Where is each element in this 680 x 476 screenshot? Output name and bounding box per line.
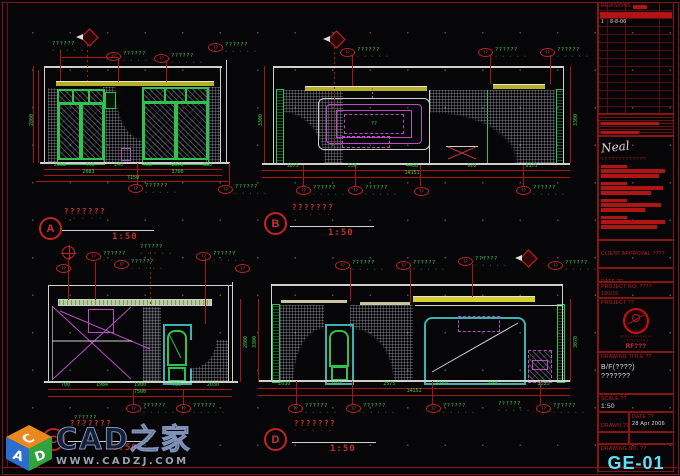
dimension-value: 1075 <box>331 382 343 387</box>
leader-tag: ????????▵ ▵ ▵ ▵ ▵ <box>218 185 267 195</box>
construction-line <box>44 66 45 163</box>
dimension-line <box>350 268 351 301</box>
cad-drawing-sheet: A ??????? ▵ ▵ ▵ ▵ ▵ 1:50 2800 ?? <box>0 0 680 476</box>
leader-tag: ????????▵ ▵ ▵ ▵ ▵ <box>126 404 175 414</box>
leader-tag: ????????▵ ▵ ▵ ▵ ▵ <box>106 52 155 62</box>
dimension-line <box>352 55 353 86</box>
door-arch-panel <box>329 330 349 367</box>
centerline <box>372 88 373 98</box>
dimension-values-row: 20301075257541505002225 <box>258 382 570 387</box>
transom-pane <box>186 88 208 102</box>
vertical-dimension: 2800 <box>243 336 249 348</box>
drawing-title-cell: DRAWING TITLE ?? B/F(????) ??????? <box>598 352 674 394</box>
dimension-line <box>258 395 570 396</box>
dimension-line <box>472 264 473 297</box>
leader-tag: ????????▵ ▵ ▵ ▵ ▵ <box>458 257 507 267</box>
construction-line <box>48 285 49 383</box>
construction-line <box>220 66 221 163</box>
drawn-cell: DRAWN ?? <box>598 412 629 432</box>
leader-tag: ??????▵ ▵ ▵ ▵ ▵ <box>140 245 172 255</box>
construction-line <box>273 66 564 68</box>
tag-text: ??????▵ ▵ ▵ ▵ ▵ <box>123 52 155 62</box>
leader-dashed-line <box>87 45 88 81</box>
tag-oval-icon: ?? <box>348 186 363 195</box>
company-seal-icon <box>623 308 649 334</box>
title-underline <box>290 226 374 227</box>
tag-oval-icon: ?? <box>426 404 441 413</box>
tag-oval-icon: ?? <box>56 264 71 273</box>
dimension-line <box>410 268 411 303</box>
construction-line <box>562 284 563 382</box>
tag-text: ??????▵ ▵ ▵ ▵ ▵ <box>413 261 445 271</box>
dimension-value: 14151 <box>406 389 421 394</box>
leader-tag: ????????▵ ▵ ▵ ▵ ▵ <box>154 54 203 64</box>
panel-joint <box>487 90 488 163</box>
dimension-value: 750 <box>172 383 181 388</box>
leader-tag: ????????▵ ▵ ▵ ▵ ▵ <box>540 48 589 58</box>
door-leaf <box>58 103 81 160</box>
dimension-line <box>95 262 96 300</box>
tag-text: ??????▵ ▵ ▵ ▵ ▵ <box>235 185 267 195</box>
checked-cell: CHECKED ?? <box>598 432 629 444</box>
construction-line <box>429 90 430 163</box>
beam-band <box>360 302 410 305</box>
tag-text: ??????▵ ▵ ▵ ▵ ▵ <box>145 184 177 194</box>
drawn-date-cell: DATE ?? 28 Apr 2006 <box>629 412 674 432</box>
tag-oval-icon: ?? <box>218 185 233 194</box>
wall-light-fixture <box>105 92 116 109</box>
handrail-detail-inner <box>532 360 548 370</box>
dimension-line <box>264 66 265 163</box>
transom-pane <box>58 90 73 103</box>
tag-oval-icon: ?? <box>536 404 551 413</box>
tag-oval-icon: ?? <box>106 52 121 61</box>
dimension-value: 768 <box>143 163 152 168</box>
dimension-value: 2225 <box>538 382 550 387</box>
section-marker-icon <box>327 33 345 46</box>
dimension-value: 530 <box>348 164 357 169</box>
construction-line <box>271 284 563 286</box>
dimension-values-row: 187553044689206375 <box>262 164 562 169</box>
tag-text: ??????▵ ▵ ▵ ▵ ▵ <box>495 48 527 58</box>
tag-text: ??????▵ ▵ ▵ ▵ ▵ <box>365 186 397 196</box>
tag-text: ??????▵ ▵ ▵ ▵ ▵ <box>363 404 395 414</box>
transom-pane <box>89 90 104 103</box>
leader-tag: ????????▵ ▵ ▵ ▵ ▵ <box>516 186 565 196</box>
leader-tag: ????????▵ ▵ ▵ ▵ ▵ <box>348 186 397 196</box>
section-marker-icon <box>519 252 537 265</box>
sheet-border-inner-left <box>7 2 8 468</box>
tag-oval-icon: ?? <box>540 48 555 57</box>
tag-oval-icon: ?? <box>478 48 493 57</box>
dimension-value: 500 <box>488 382 497 387</box>
transom-pane <box>73 90 88 103</box>
tag-text: ??????▵ ▵ ▵ ▵ ▵ <box>533 186 565 196</box>
dimension-value: 4468 <box>406 164 418 169</box>
drawing-no-cell: DRAWING NO. ?? GE-01 <box>598 444 674 472</box>
wall-hatch <box>350 305 413 381</box>
elevation-scale: 1:50 <box>330 444 356 454</box>
date-cell: DATE ?? <box>598 268 674 282</box>
leader-tag: ????????▵ ▵ ▵ ▵ ▵ <box>196 252 245 262</box>
tag-oval-icon: ?? <box>114 260 129 269</box>
cadzj-cube-logo-icon: C A D <box>6 425 52 471</box>
tag-oval-icon: ?? <box>176 404 191 413</box>
title-block: REVISIONS 1 8-8-06 Neal ????????????? <box>597 2 676 474</box>
revisions-highlight <box>633 5 647 9</box>
dimension-value: 3760 <box>171 170 183 175</box>
tag-oval-icon: ?? <box>296 186 311 195</box>
client-approval-cell: CLIENT APPROVAL ???? <box>598 240 674 268</box>
wall-hatch <box>48 88 57 162</box>
construction-line <box>271 284 272 382</box>
leader-tag: ????????▵ ▵ ▵ ▵ ▵ <box>426 404 475 414</box>
column-trim <box>276 89 284 165</box>
tag-text: ??????▵ ▵ ▵ ▵ ▵ <box>213 252 245 262</box>
beam-band <box>58 299 212 306</box>
notes-block <box>598 114 674 136</box>
door-leaf <box>143 102 176 160</box>
dimension-line <box>205 258 206 324</box>
watermark: C A D CAD之家 WWW.CADZJ.COM <box>6 425 192 471</box>
dimension-line <box>60 50 61 81</box>
section-cut-line <box>334 47 335 146</box>
tag-text: ??????▵ ▵ ▵ ▵ ▵ <box>553 404 585 414</box>
leader-tag: ????????▵ ▵ ▵ ▵ ▵ <box>114 260 163 270</box>
transom-pane <box>165 88 187 102</box>
door-unit <box>57 89 105 165</box>
vertical-dimension: 2800 <box>29 114 35 126</box>
tag-oval-icon: ?? <box>154 54 169 63</box>
dimension-line <box>570 66 571 163</box>
construction-line <box>228 285 229 383</box>
tag-text: ??????▵ ▵ ▵ ▵ ▵ <box>305 404 337 414</box>
tag-oval-icon: ?? <box>208 43 223 52</box>
leader-tag: ?? <box>56 264 71 273</box>
dimension-values-row: 7150 <box>44 176 222 181</box>
dimension-value: 7150 <box>127 176 139 181</box>
dimension-value: 14151 <box>404 171 419 176</box>
door-leaf <box>176 102 209 160</box>
elevation-title: ??????? ▵ ▵ ▵ ▵ ▵ <box>294 420 336 432</box>
tag-oval-icon: ?? <box>548 261 563 270</box>
tag-oval-icon: ?? <box>288 404 303 413</box>
stair-hatch <box>143 307 161 381</box>
dimension-value: 440 <box>85 163 94 168</box>
transom-pane <box>143 88 165 102</box>
wall-hatch <box>430 90 555 163</box>
construction-line <box>563 66 564 163</box>
dimension-line <box>229 163 230 185</box>
dimension-values-row: 20884402407682570880 <box>44 163 222 168</box>
dimension-values-row: 7500 <box>48 390 232 395</box>
tag-text: ??????▵ ▵ ▵ ▵ ▵ <box>565 261 597 271</box>
dimension-value: 2570 <box>171 163 183 168</box>
dimension-value: 880 <box>203 163 212 168</box>
leader-tag: ?? <box>235 264 250 273</box>
door-kick-panel <box>331 366 348 381</box>
construction-line <box>273 66 274 163</box>
tag-oval-icon: ?? <box>235 264 250 273</box>
tag-oval-icon: ?? <box>516 186 531 195</box>
leader-tag: ????????▵ ▵ ▵ ▵ ▵ <box>536 404 585 414</box>
column-trim <box>557 304 565 383</box>
tag-text: ??????▵ ▵ ▵ ▵ ▵ <box>193 404 225 414</box>
dimension-value: 6375 <box>525 164 537 169</box>
elevation-label-a: A <box>39 217 62 240</box>
dimension-line <box>550 55 551 84</box>
revisions-header-bar <box>600 12 672 18</box>
dimension-line <box>240 299 241 382</box>
dimension-line <box>48 396 232 397</box>
checked-date-cell: DATE ?? <box>629 432 674 444</box>
tag-oval-icon: ?? <box>128 184 143 193</box>
tag-text: ??????▵ ▵ ▵ ▵ ▵ <box>171 54 203 64</box>
cabinet-detail <box>342 136 390 148</box>
door-arch-panel <box>167 330 187 366</box>
leader-tag: ????????▵ ▵ ▵ ▵ ▵ <box>548 261 597 271</box>
tag-text: ??????▵ ▵ ▵ ▵ ▵ <box>313 186 345 196</box>
vertical-dimension: 3300 <box>573 114 579 126</box>
dimension-line <box>570 299 571 382</box>
leader-tag: ?? <box>414 187 429 196</box>
elevation-title: ??????? ▵ ▵ ▵ ▵ ▵ <box>64 208 106 220</box>
tag-oval-icon: ?? <box>196 252 211 261</box>
door-kick-panel <box>168 367 186 382</box>
dimension-value: 2575 <box>383 382 395 387</box>
ceiling-detail <box>458 316 500 332</box>
dimension-values-row: 14151 <box>258 389 570 394</box>
tag-text: ??????▵ ▵ ▵ ▵ ▵ <box>52 42 84 52</box>
tag-text: ??????▵ ▵ ▵ ▵ ▵ <box>143 404 175 414</box>
title-underline <box>62 230 154 231</box>
leader-tag: ????????▵ ▵ ▵ ▵ ▵ <box>340 48 389 58</box>
revision-no: 1 <box>601 19 604 26</box>
dimension-value: 4150 <box>436 382 448 387</box>
dimension-values-row: 700198419007502030 <box>48 383 232 388</box>
leader-tag: ????????▵ ▵ ▵ ▵ ▵ <box>346 404 395 414</box>
watermark-url: WWW.CADZJ.COM <box>56 456 192 467</box>
tag-text: ??????▵ ▵ ▵ ▵ ▵ <box>352 261 384 271</box>
dimension-line <box>36 181 228 182</box>
firm-signature: Neal <box>600 140 630 155</box>
dimension-value: 2088 <box>54 163 66 168</box>
dimension-line <box>258 299 259 382</box>
tag-oval-icon: ?? <box>414 187 429 196</box>
dimension-line <box>38 70 39 163</box>
revisions-table: REVISIONS 1 8-8-06 <box>598 2 674 114</box>
project-no-cell: PROJECT NO. ???? 100/19 <box>598 282 674 298</box>
tag-oval-icon: ?? <box>335 261 350 270</box>
tag-text: ??????▵ ▵ ▵ ▵ ▵ <box>557 48 589 58</box>
ceiling-band <box>305 86 427 91</box>
construction-line <box>415 305 563 306</box>
leader-tag: ????????▵ ▵ ▵ ▵ ▵ <box>208 43 257 53</box>
elevation-title: ??????? ▵ ▵ ▵ ▵ ▵ <box>292 204 334 216</box>
dimension-value: 7500 <box>134 390 146 395</box>
leader-tag: ??????▵ ▵ ▵ ▵ ▵ <box>52 42 84 52</box>
tag-oval-icon: ?? <box>346 404 361 413</box>
wall-hatch <box>280 305 324 381</box>
leader-tag: ??????▵ ▵ ▵ ▵ ▵ <box>498 402 530 412</box>
leader-tag: ????????▵ ▵ ▵ ▵ ▵ <box>288 404 337 414</box>
dimension-value: 1875 <box>287 164 299 169</box>
leader-tag: ????????▵ ▵ ▵ ▵ ▵ <box>296 186 345 196</box>
table-top <box>446 146 478 147</box>
revision-date: 8-8-06 <box>610 19 626 26</box>
leader-tag: ????????▵ ▵ ▵ ▵ ▵ <box>128 184 177 194</box>
tag-text: ??????▵ ▵ ▵ ▵ ▵ <box>443 404 475 414</box>
tag-oval-icon: ?? <box>340 48 355 57</box>
dimension-value: 2030 <box>278 382 290 387</box>
firm-name: ????????????? <box>601 156 671 162</box>
construction-line <box>232 282 233 383</box>
construction-line <box>226 60 227 163</box>
detail-box <box>88 309 114 333</box>
detail-mark <box>121 148 131 161</box>
leader-tag: ????????▵ ▵ ▵ ▵ ▵ <box>335 261 384 271</box>
tag-oval-icon: ?? <box>458 257 473 266</box>
elevation-scale: 1:50 <box>112 232 138 242</box>
door-unit <box>142 87 209 165</box>
ceiling-band <box>493 84 545 89</box>
ceiling-band <box>413 296 535 302</box>
construction-line <box>44 66 222 68</box>
tv-inner-detail <box>344 114 404 134</box>
tag-text: ??????▵ ▵ ▵ ▵ ▵ <box>225 43 257 53</box>
leader-tag: ????????▵ ▵ ▵ ▵ ▵ <box>176 404 225 414</box>
scale-cell: SCALE ?? 1:50 <box>598 394 674 412</box>
dimension-value: 1984 <box>96 383 108 388</box>
revisions-title: REVISIONS <box>601 3 631 10</box>
title-underline <box>292 442 376 443</box>
firm-block: Neal ????????????? <box>598 136 674 240</box>
tag-oval-icon: ?? <box>126 404 141 413</box>
dimension-value: 2083 <box>82 170 94 175</box>
tag-text: ??????▵ ▵ ▵ ▵ ▵ <box>131 260 163 270</box>
dimension-line <box>490 55 491 84</box>
dimension-line <box>33 66 34 163</box>
drawing-number: GE-01 <box>601 453 671 473</box>
dimension-value: 920 <box>467 164 476 169</box>
tag-text: ??????▵ ▵ ▵ ▵ ▵ <box>498 402 530 412</box>
tag-oval-icon: ?? <box>396 261 411 270</box>
leader-tag: ????????▵ ▵ ▵ ▵ ▵ <box>478 48 527 58</box>
dimension-value: 2030 <box>207 383 219 388</box>
tag-text: ??????▵ ▵ ▵ ▵ ▵ <box>140 245 172 255</box>
vertical-dimension: 3070 <box>573 336 579 348</box>
elevation-label-d: D <box>264 428 287 451</box>
ceiling-band <box>56 81 214 86</box>
tag-text: ??????▵ ▵ ▵ ▵ ▵ <box>475 257 507 267</box>
elevation-label-b: B <box>264 212 287 235</box>
beam-band <box>281 300 347 303</box>
dimension-value: 240 <box>114 163 123 168</box>
watermark-brand: CAD之家 <box>56 425 192 454</box>
dimension-values-row: 14151 <box>262 171 562 176</box>
project-cell: PROJECT ?? ????????????? ?????????? RF??… <box>598 298 674 352</box>
elevation-scale: 1:50 <box>328 228 354 238</box>
tag-oval-icon: ?? <box>86 252 101 261</box>
tag-text: ??????▵ ▵ ▵ ▵ ▵ <box>357 48 389 58</box>
wall-hatch <box>190 340 228 381</box>
leader-tag: ????????▵ ▵ ▵ ▵ ▵ <box>396 261 445 271</box>
dimension-value: 700 <box>61 383 70 388</box>
door-leaf <box>81 103 104 160</box>
column-trim <box>272 304 280 383</box>
dimension-value: 1900 <box>134 383 146 388</box>
